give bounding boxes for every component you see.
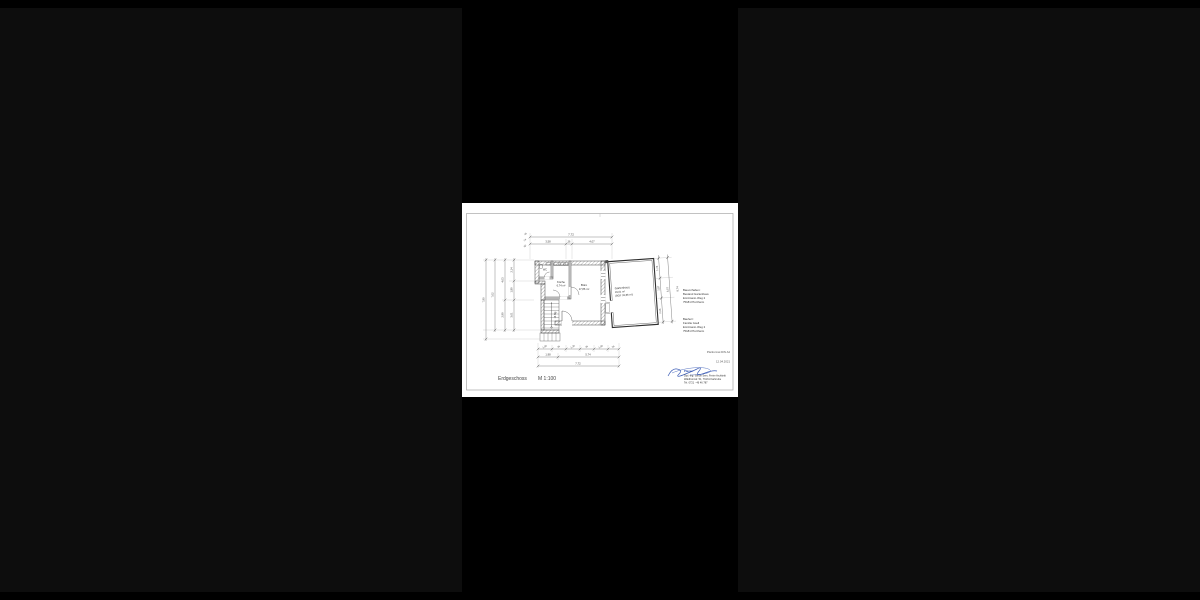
main-building-interior	[539, 261, 579, 341]
sheet-title: Erdgeschoss	[498, 376, 527, 382]
dim-label: 1,00	[542, 344, 548, 349]
sheet-scale: M 1:100	[538, 376, 556, 382]
planner-heading: Planer:	[684, 369, 694, 373]
room-area-buero: 17,86 m²	[579, 287, 590, 291]
dim-label: 36	[585, 345, 589, 349]
stair-label: 14 Stg	[554, 311, 557, 318]
dim-label: 1,98	[545, 353, 551, 357]
room-label-wc: WC	[543, 269, 547, 272]
dim-label: 4,03	[501, 277, 505, 283]
client-block: Bauherr: Familie Gsell Emil-Gann-Weg 2 7…	[683, 317, 706, 333]
dim-label: 2,26	[658, 308, 662, 314]
client-line: 75181 Pforzheim	[683, 329, 705, 333]
gartenhaus-structure	[605, 257, 658, 328]
dim-label: 5,74	[585, 353, 591, 357]
dim-label: 3,01	[510, 312, 514, 318]
dimension-chain-top: 7,72 3,58 36 4,07 45 24 50	[524, 232, 613, 259]
signature-block: Planer: Dipl.-Ing. Simon Sers, Freier Ar…	[668, 368, 726, 385]
dim-label: 2,99	[501, 312, 505, 318]
room-labels: WC Küche 6,74 m² Büro 17,86 m² 14 Stg	[543, 269, 589, 319]
viewer-top-strip	[0, 0, 1200, 8]
project-line: 75181 Pforzheim	[683, 300, 705, 304]
dimension-chain-right: 1,74 1,87 2,26 6,57 8,74	[654, 254, 682, 324]
image-viewer-background: WC Küche 6,74 m² Büro 17,86 m² 14 Stg Ga…	[0, 0, 1200, 600]
viewer-bottom-strip	[0, 592, 1200, 600]
plan-date: 12.04.2021	[716, 360, 730, 364]
floorplan-sheet: WC Küche 6,74 m² Büro 17,86 m² 14 Stg Ga…	[462, 203, 738, 397]
dim-label: 1,74	[655, 265, 659, 271]
planner-line: Tel. 0721 - 46 46 787	[684, 382, 708, 385]
dim-label: 8,74	[675, 286, 679, 292]
dim-label: 7,72	[568, 233, 574, 237]
project-block: Bauvorhaben: Bestand Gartenhaus Emil-Gan…	[683, 288, 709, 304]
title-block: Erdgeschoss M 1:100	[498, 376, 556, 382]
room-area-kueche: 6,74 m²	[557, 284, 566, 288]
dim-label: 7,72	[575, 362, 581, 366]
dim-label: 36	[557, 345, 561, 349]
dim-label: 4,07	[589, 240, 595, 244]
dim-label: 3,58	[545, 240, 551, 244]
dim-label: 1,89	[510, 287, 514, 293]
dim-label: 1,87	[656, 285, 660, 291]
plan-format: Planformat DIN A4	[707, 350, 731, 354]
dim-label: 1,00	[598, 344, 604, 349]
dim-label: 24	[524, 238, 528, 242]
room-label-buero: Büro	[581, 283, 588, 287]
dim-label: 45	[524, 232, 528, 236]
dimension-chain-bottom: 1,00 36 1,36 36 1,00 36 1,98 5,74 7,72	[537, 343, 621, 368]
dim-label: 50	[524, 244, 528, 248]
dim-label: 7,02	[491, 292, 495, 298]
dim-label: 6,57	[665, 286, 669, 292]
floorplan-drawing: WC Küche 6,74 m² Büro 17,86 m² 14 Stg Ga…	[462, 203, 738, 397]
dim-label: 36	[611, 345, 615, 349]
dimension-chain-left: 2,14 1,89 3,01 4,03 2,99 7,02 7,90	[482, 258, 540, 341]
meta-block: Planformat DIN A4 12.04.2021	[707, 350, 731, 364]
dim-label: 2,14	[510, 267, 514, 273]
gartenhaus-connector	[605, 302, 610, 314]
dim-label: 1,36	[570, 344, 576, 349]
dim-label: 36	[568, 241, 571, 244]
room-label-kueche: Küche	[557, 280, 565, 284]
dim-label: 7,90	[482, 297, 486, 303]
